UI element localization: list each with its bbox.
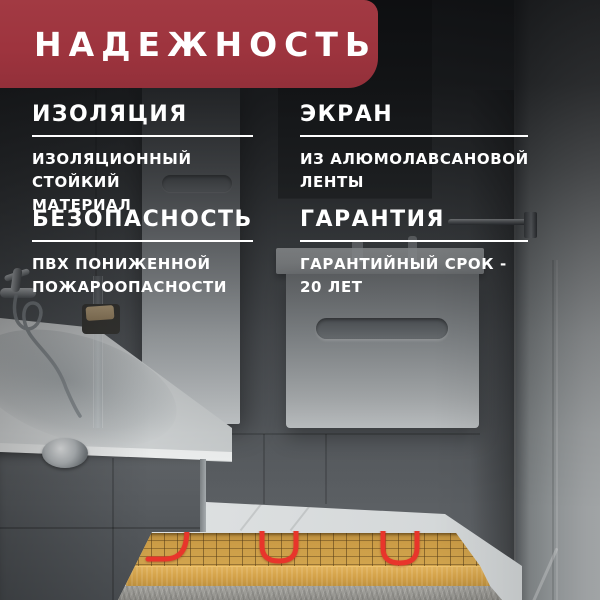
feature-heading: ИЗОЛЯЦИЯ <box>32 103 276 127</box>
soap-bar <box>86 305 115 321</box>
feature-heading: БЕЗОПАСНОСТЬ <box>32 208 276 232</box>
promo-poster: НАДЕЖНОСТЬ ИЗОЛЯЦИЯ ИЗОЛЯЦИОННЫЙ СТОЙКИЙ… <box>0 0 600 600</box>
title-banner: НАДЕЖНОСТЬ <box>0 0 378 88</box>
feature-description: ГАРАНТИЙНЫЙ СРОК - 20 ЛЕТ <box>300 253 544 299</box>
vanity-handle-groove <box>316 318 448 339</box>
feature-divider <box>32 135 253 137</box>
feature-divider <box>300 135 528 137</box>
feature-heading: ГАРАНТИЯ <box>300 208 544 232</box>
apron-tile-seam <box>112 458 114 600</box>
door-molding <box>552 260 554 600</box>
apron-tile-seam <box>0 527 204 529</box>
bath-drain-knob <box>42 438 88 468</box>
feature-divider <box>32 240 253 242</box>
feature-safety: БЕЗОПАСНОСТЬ ПВХ ПОНИЖЕННОЙ ПОЖАРООПАСНО… <box>32 208 276 299</box>
feature-description: ИЗ АЛЮМОЛАВСАНОВОЙ ЛЕНТЫ <box>300 148 544 194</box>
feature-description: ПВХ ПОНИЖЕННОЙ ПОЖАРООПАСНОСТИ <box>32 253 276 299</box>
feature-divider <box>300 240 528 242</box>
feature-heading: ЭКРАН <box>300 103 544 127</box>
feature-insulation: ИЗОЛЯЦИЯ ИЗОЛЯЦИОННЫЙ СТОЙКИЙ МАТЕРИАЛ <box>32 103 276 217</box>
wall-tile-seam <box>325 434 327 504</box>
wall-tile-seam <box>263 434 265 504</box>
feature-warranty: ГАРАНТИЯ ГАРАНТИЙНЫЙ СРОК - 20 ЛЕТ <box>300 208 544 299</box>
feature-screen: ЭКРАН ИЗ АЛЮМОЛАВСАНОВОЙ ЛЕНТЫ <box>300 103 544 194</box>
banner-title: НАДЕЖНОСТЬ <box>0 25 377 64</box>
